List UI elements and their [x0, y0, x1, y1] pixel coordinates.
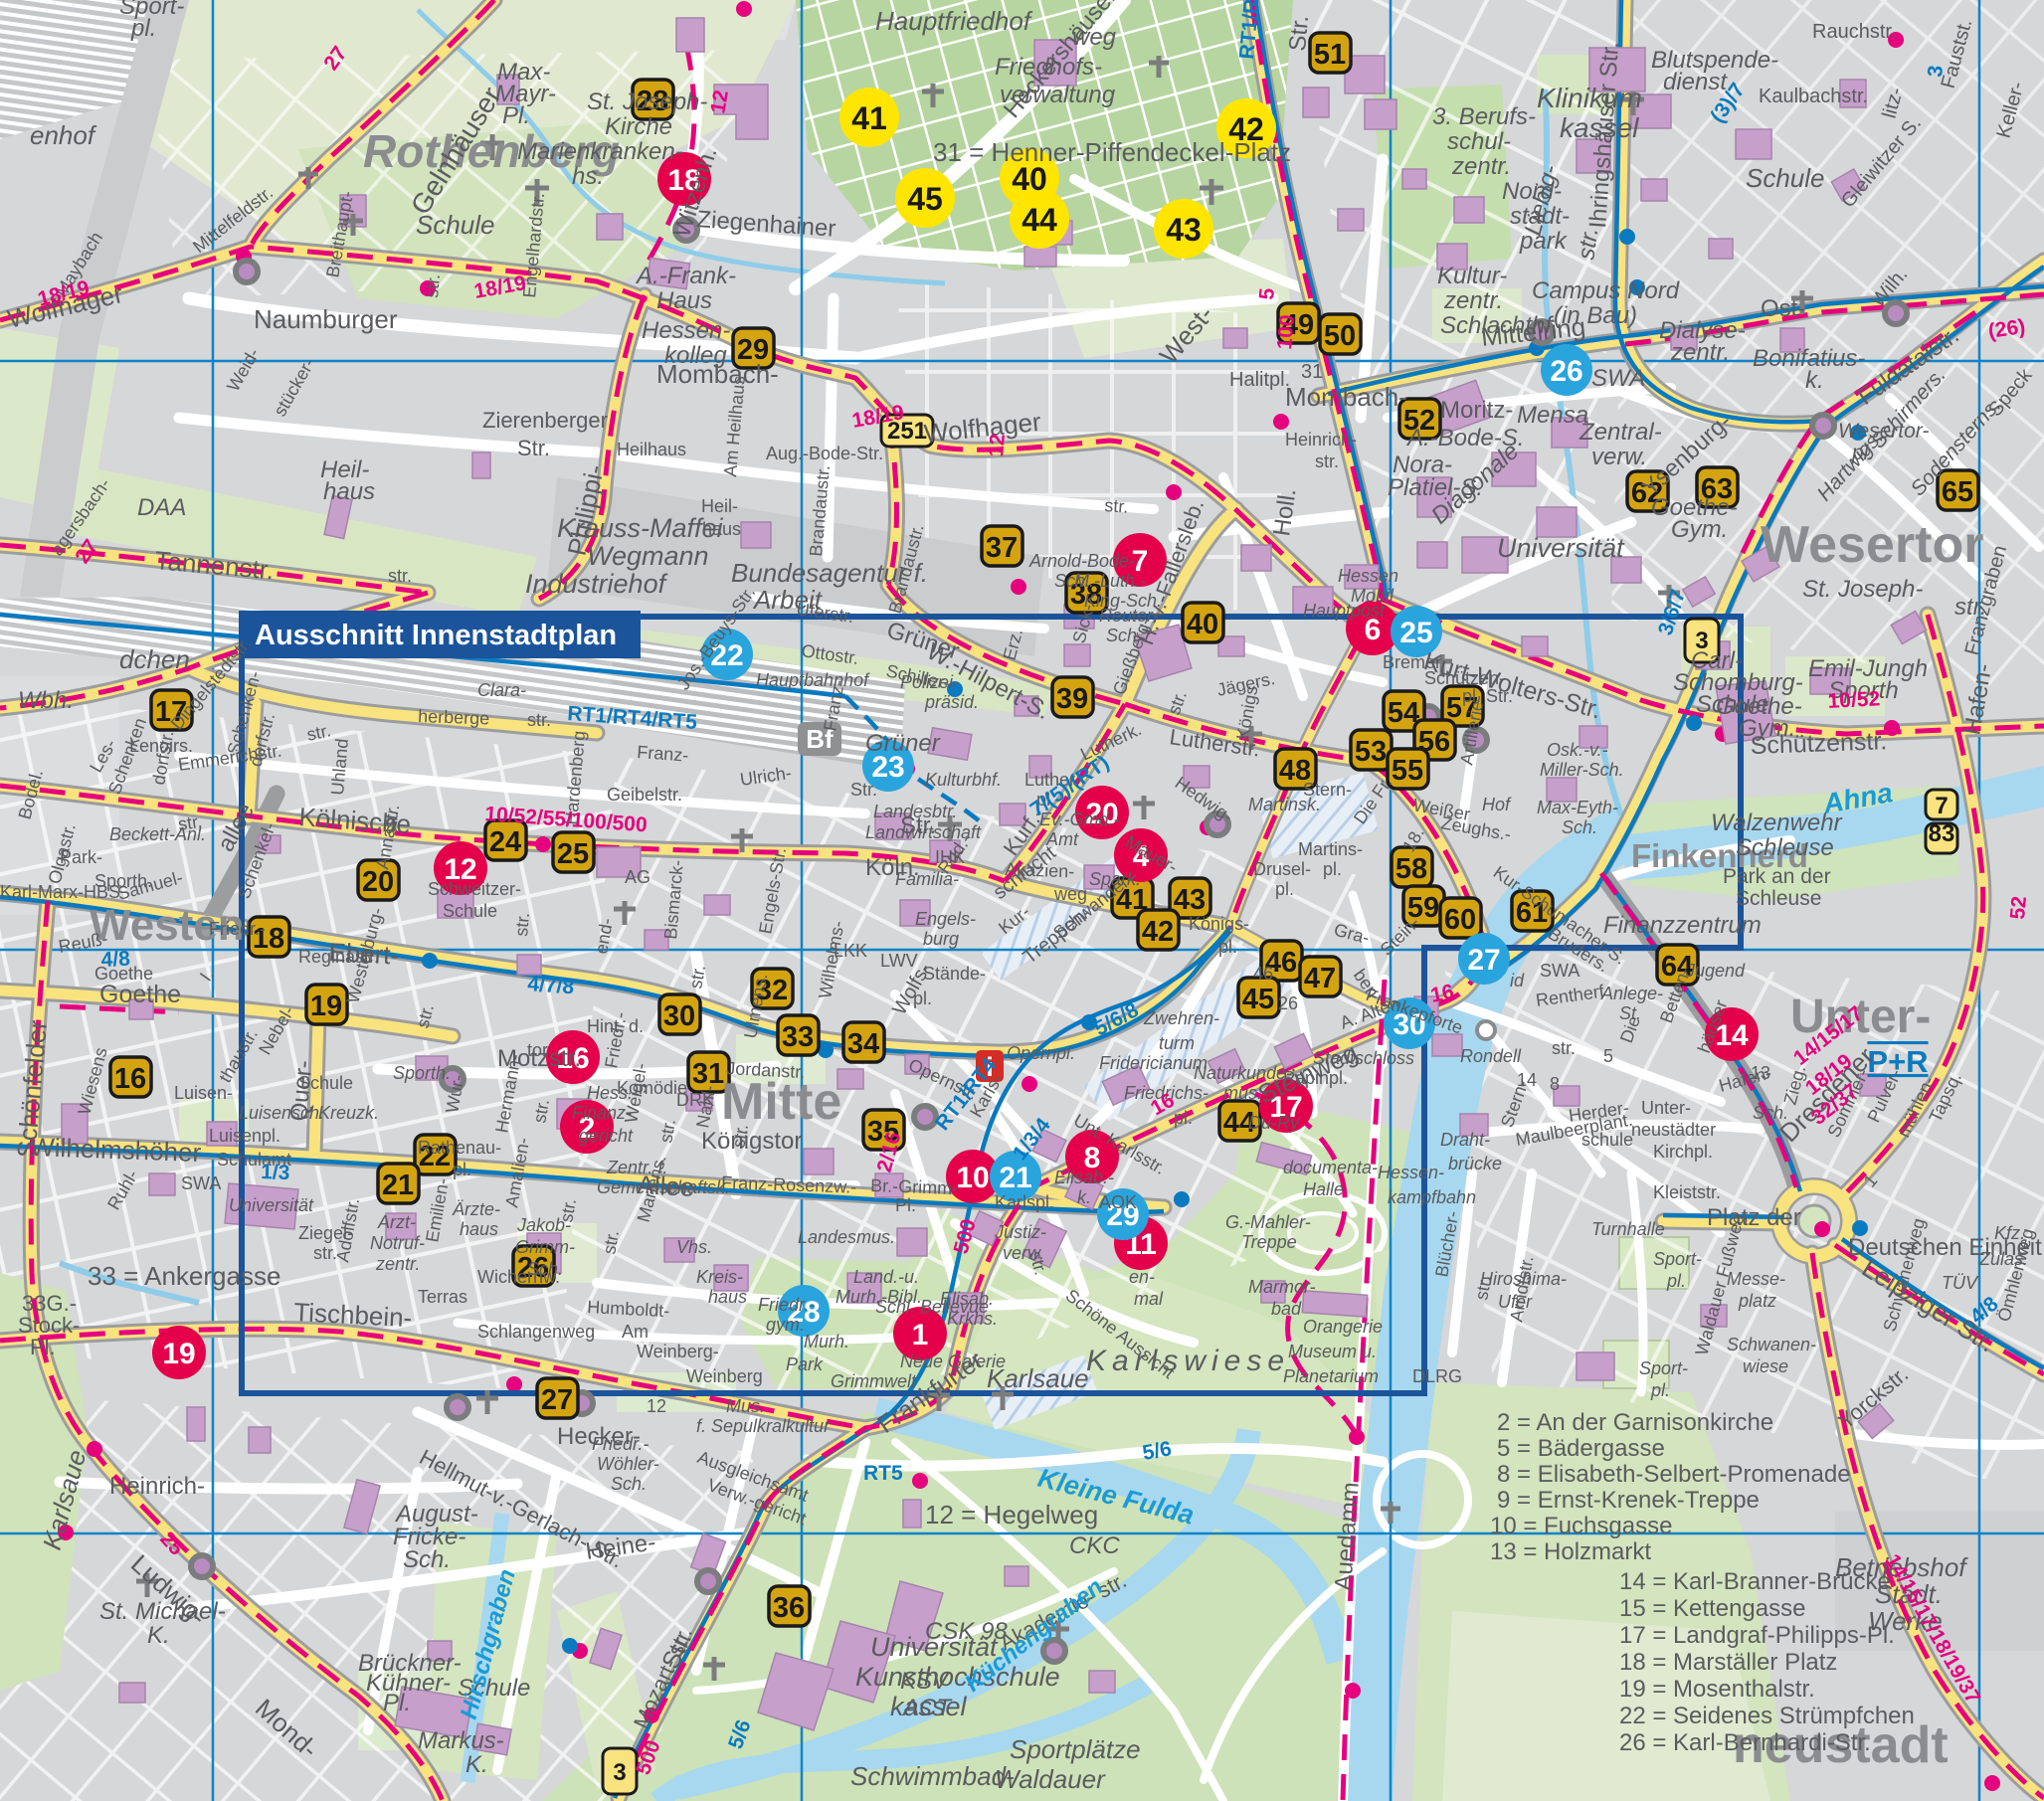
svg-text:Stände-: Stände- [923, 964, 986, 984]
svg-text:42: 42 [1142, 916, 1174, 948]
svg-text:31 = Henner-Piffendeckel-Platz: 31 = Henner-Piffendeckel-Platz [933, 137, 1291, 167]
svg-text:16: 16 [1428, 981, 1456, 1007]
svg-text:Max-Eyth-: Max-Eyth- [1537, 798, 1618, 817]
svg-text:Terras: Terras [418, 1287, 467, 1307]
svg-text:40: 40 [1187, 609, 1218, 640]
svg-text:Walzenwehr: Walzenwehr [1711, 810, 1843, 836]
svg-text:Elisab.: Elisab. [940, 1289, 994, 1309]
svg-text:Jordanstr.: Jordanstr. [726, 1058, 806, 1082]
svg-text:platz: platz [1738, 1291, 1776, 1311]
svg-text:Messe-: Messe- [1727, 1269, 1785, 1289]
svg-text:Murh.-Bibl.: Murh.-Bibl. [836, 1287, 922, 1307]
svg-text:ACT: ACT [901, 1695, 953, 1721]
svg-text:43: 43 [1166, 212, 1202, 248]
svg-text:zentr.: zentr. [1670, 339, 1730, 366]
svg-text:Karl-Marx-HBS: Karl-Marx-HBS [0, 882, 120, 902]
svg-text:Mensa: Mensa [1517, 402, 1588, 429]
svg-text:Rondell: Rondell [1460, 1046, 1522, 1066]
svg-text:Landesbtr.: Landesbtr. [873, 802, 957, 821]
svg-text:Beckett-Anl.: Beckett-Anl. [109, 824, 206, 844]
svg-text:haus: haus [708, 1287, 747, 1307]
svg-text:31: 31 [1301, 361, 1323, 383]
svg-text:k.: k. [1805, 367, 1824, 394]
svg-text:Schweitzer-: Schweitzer- [428, 879, 521, 899]
svg-text:str.: str. [313, 1243, 337, 1263]
svg-text:45: 45 [1242, 984, 1274, 1015]
svg-text:Weinberg-: Weinberg- [637, 1342, 719, 1361]
svg-text:46: 46 [1253, 964, 1273, 984]
svg-text:Schule: Schule [443, 901, 497, 921]
svg-text:Luisen-: Luisen- [174, 1083, 233, 1103]
svg-text:Landesmus.: Landesmus. [798, 1227, 895, 1247]
svg-text:Unter-: Unter- [1641, 1098, 1691, 1118]
svg-text:8 = Elisabeth-Selbert-Promenad: 8 = Elisabeth-Selbert-Promenade [1497, 1461, 1851, 1488]
svg-text:Schule: Schule [1696, 691, 1768, 718]
svg-text:King-Sch.: King-Sch. [1084, 591, 1162, 611]
svg-text:Jugend: Jugend [1685, 961, 1746, 981]
svg-text:Heilhaus: Heilhaus [617, 440, 686, 459]
svg-text:Hessen: Hessen [1338, 566, 1398, 586]
svg-text:50: 50 [1324, 320, 1356, 352]
svg-text:pl.: pl. [130, 15, 156, 42]
svg-text:Stadtschloss: Stadtschloss [1313, 1048, 1414, 1068]
svg-text:DLRG: DLRG [1412, 1366, 1462, 1386]
svg-text:Zwehren-: Zwehren- [1143, 1008, 1219, 1028]
svg-text:Schlangenweg: Schlangenweg [477, 1322, 595, 1342]
svg-text:43: 43 [1174, 884, 1206, 916]
svg-text:Turnhalle: Turnhalle [1591, 1219, 1665, 1239]
svg-text:str.: str. [422, 273, 444, 299]
svg-text:36: 36 [773, 1592, 805, 1624]
svg-text:12: 12 [647, 1396, 666, 1416]
svg-text:26: 26 [1550, 355, 1582, 388]
svg-text:pl.: pl. [1275, 879, 1294, 899]
svg-text:41: 41 [851, 100, 887, 136]
svg-text:Ausschnitt Innenstadtplan: Ausschnitt Innenstadtplan [255, 620, 617, 651]
svg-text:Gemeinschaftsk.: Gemeinschaftsk. [597, 1177, 730, 1197]
svg-text:Moritz-: Moritz- [1440, 397, 1513, 424]
svg-text:Orangerie: Orangerie [1303, 1317, 1383, 1337]
svg-text:str.: str. [1471, 1275, 1495, 1302]
svg-text:K.: K. [465, 1751, 488, 1778]
svg-text:4/8: 4/8 [100, 947, 131, 972]
svg-text:zentr.: zentr. [375, 1254, 420, 1274]
svg-text:Jakob-: Jakob- [516, 1215, 571, 1235]
svg-text:Murh.: Murh. [804, 1332, 849, 1351]
svg-text:33: 33 [782, 1021, 814, 1053]
svg-text:TÜV: TÜV [1942, 1273, 1979, 1293]
svg-text:f. Sepulkralkultur: f. Sepulkralkultur [696, 1416, 831, 1436]
svg-text:pl.: pl. [1666, 1271, 1686, 1291]
svg-text:LKK: LKK [834, 941, 867, 961]
svg-text:Zentr. f.: Zentr. f. [606, 1158, 667, 1177]
svg-text:AG: AG [625, 867, 650, 887]
svg-text:kolleg: kolleg [664, 342, 727, 369]
svg-text:58: 58 [1395, 853, 1427, 885]
svg-text:Rauchstr.: Rauchstr. [1812, 21, 1896, 43]
svg-text:Kirche: Kirche [605, 113, 672, 140]
svg-text:Justiz-: Justiz- [994, 1222, 1046, 1242]
svg-text:Rathenau-: Rathenau- [418, 1138, 501, 1158]
svg-text:Weinberg: Weinberg [686, 1366, 763, 1386]
svg-text:Hint. d.: Hint. d. [587, 1016, 644, 1036]
svg-text:Zierenberger: Zierenberger [482, 408, 608, 433]
svg-text:44: 44 [1022, 202, 1057, 238]
svg-text:45: 45 [907, 181, 943, 217]
svg-text:RT5: RT5 [863, 1462, 903, 1485]
svg-text:str.: str. [599, 1229, 623, 1256]
svg-text:Lenoirs.: Lenoirs. [129, 736, 193, 756]
svg-text:Schleuse: Schleuse [1736, 887, 1821, 910]
svg-text:Schule: Schule [298, 1073, 353, 1093]
svg-text:Tischbein-: Tischbein- [293, 1297, 413, 1333]
svg-text:Universität: Universität [229, 1195, 314, 1215]
svg-text:KSV: KSV [900, 1668, 950, 1695]
svg-text:14 = Karl-Branner-Brücke: 14 = Karl-Branner-Brücke [1619, 1568, 1891, 1595]
svg-text:kassel: kassel [1560, 112, 1639, 143]
svg-text:bad: bad [1271, 1299, 1302, 1319]
svg-text:LWV: LWV [880, 951, 918, 971]
svg-text:Wöhler-: Wöhler- [597, 1454, 659, 1474]
svg-text:Ziegel-: Ziegel- [298, 1223, 353, 1243]
svg-text:Akazien-: Akazien- [1005, 859, 1075, 881]
svg-text:Wesertor: Wesertor [1761, 516, 1983, 574]
svg-text:Fridericianum: Fridericianum [1099, 1053, 1208, 1073]
svg-text:Schwimmbad-: Schwimmbad- [850, 1761, 1015, 1791]
svg-text:Arzt-: Arzt- [377, 1212, 416, 1232]
svg-text:1: 1 [912, 1319, 929, 1351]
svg-text:mus.-: mus.- [1223, 1083, 1268, 1103]
svg-text:pl.: pl. [913, 989, 932, 1008]
svg-text:Grimmwelt: Grimmwelt [831, 1371, 917, 1391]
svg-text:Sch.: Sch. [1106, 626, 1142, 645]
svg-text:54: 54 [1388, 697, 1419, 729]
svg-text:Friedr.-: Friedr.- [209, 919, 266, 939]
svg-text:haus: haus [460, 1219, 498, 1239]
svg-text:zentr.: zentr. [1443, 287, 1503, 314]
svg-text:Kleiststr.: Kleiststr. [1653, 1182, 1721, 1202]
svg-text:Karlsaue: Karlsaue [987, 1363, 1089, 1393]
svg-text:str.: str. [1552, 1038, 1576, 1058]
svg-text:Finanzzentrum: Finanzzentrum [1603, 912, 1762, 939]
svg-text:Notruf-: Notruf- [370, 1233, 425, 1253]
svg-text:str.: str. [728, 1123, 752, 1150]
svg-text:Papinpl.: Papinpl. [1283, 1068, 1348, 1088]
svg-text:1/3: 1/3 [261, 1161, 290, 1184]
svg-text:Kirchpl.: Kirchpl. [1653, 1142, 1713, 1162]
svg-text:k.: k. [1077, 1187, 1091, 1207]
svg-text:Am: Am [622, 1322, 649, 1342]
svg-text:brücke: brücke [1448, 1154, 1502, 1173]
svg-text:Karlswiese: Karlswiese [1086, 1345, 1290, 1377]
svg-text:19 = Mosenthalstr.: 19 = Mosenthalstr. [1619, 1676, 1815, 1703]
svg-text:3: 3 [613, 1759, 626, 1786]
svg-text:16: 16 [114, 1063, 146, 1095]
svg-text:Kunsthochschule: Kunsthochschule [855, 1662, 1060, 1692]
svg-text:haus: haus [323, 478, 375, 505]
svg-text:wiese: wiese [1743, 1356, 1788, 1376]
svg-text:Anlege-: Anlege- [1600, 984, 1663, 1003]
svg-text:Luisensch.: Luisensch. [239, 1103, 324, 1123]
svg-text:12: 12 [985, 433, 1010, 457]
svg-text:Treppe: Treppe [1241, 1232, 1297, 1252]
svg-text:21: 21 [999, 1162, 1031, 1194]
svg-text:Clara-: Clara- [477, 680, 526, 700]
svg-text:verw.: verw. [1591, 444, 1647, 470]
svg-text:zentr.: zentr. [1451, 153, 1511, 180]
svg-text:Kreuzk.: Kreuzk. [318, 1103, 379, 1123]
svg-text:5: 5 [1603, 1046, 1613, 1066]
svg-text:documenta-: documenta- [1283, 1158, 1378, 1177]
svg-text:str.: str. [529, 1098, 553, 1125]
svg-text:Museum u.: Museum u. [1288, 1342, 1377, 1361]
svg-text:100: 100 [1273, 314, 1299, 351]
svg-text:51: 51 [1314, 39, 1346, 71]
svg-text:Sport-: Sport- [1653, 1249, 1702, 1269]
svg-text:turm: turm [1159, 1033, 1195, 1053]
svg-text:Arbeit: Arbeit [752, 585, 824, 615]
svg-text:Pl.: Pl. [502, 102, 530, 129]
svg-text:CKC: CKC [1069, 1532, 1120, 1559]
svg-text:4/7/8: 4/7/8 [527, 973, 576, 998]
svg-text:Wegmann: Wegmann [587, 541, 709, 571]
svg-text:gericht: gericht [579, 1126, 634, 1146]
svg-text:27: 27 [1467, 944, 1500, 977]
svg-text:Campus Nord: Campus Nord [1532, 277, 1680, 304]
svg-text:83: 83 [1929, 820, 1955, 847]
svg-text:25: 25 [1399, 617, 1432, 649]
svg-text:Ärzte-: Ärzte- [452, 1199, 500, 1219]
svg-text:Königstor: Königstor [701, 1128, 802, 1155]
svg-text:Arnold-Bode-: Arnold-Bode- [1028, 551, 1135, 571]
svg-text:(in Bau): (in Bau) [1554, 302, 1637, 329]
svg-text:65: 65 [1942, 476, 1973, 508]
svg-text:Heinrich-: Heinrich- [1285, 430, 1357, 450]
svg-text:Elisab.-: Elisab.- [1054, 1168, 1114, 1187]
svg-text:Mombach-: Mombach- [1285, 382, 1407, 412]
svg-text:53: 53 [1355, 736, 1387, 768]
svg-text:A.-Frank-: A.-Frank- [635, 263, 736, 289]
svg-text:Goethe: Goethe [99, 981, 181, 1008]
svg-text:pl.: pl. [1323, 859, 1342, 879]
svg-text:Geibelstr.: Geibelstr. [607, 785, 682, 805]
svg-text:7: 7 [1935, 793, 1948, 819]
svg-text:tor: tor [527, 1040, 548, 1060]
svg-text:Heinrich-: Heinrich- [109, 1473, 205, 1500]
svg-text:DRK: DRK [676, 1090, 714, 1110]
svg-text:56: 56 [1418, 726, 1450, 758]
svg-text:47: 47 [1304, 963, 1336, 994]
svg-text:60: 60 [1444, 904, 1476, 936]
svg-text:Hof: Hof [1482, 795, 1512, 814]
svg-text:schul-: schul- [1447, 128, 1511, 155]
svg-text:Franz-: Franz- [637, 742, 689, 766]
svg-text:17 = Landgraf-Philipps-Pl.: 17 = Landgraf-Philipps-Pl. [1619, 1622, 1895, 1649]
svg-text:Kreis-: Kreis- [696, 1267, 743, 1287]
svg-text:Königs-: Königs- [1189, 914, 1249, 934]
svg-text:Gym.: Gym. [1671, 516, 1728, 543]
svg-text:Pl.: Pl. [895, 1195, 916, 1215]
svg-text:Kultur-: Kultur- [1437, 263, 1507, 289]
svg-text:pl.: pl. [1218, 937, 1237, 957]
svg-text:SWA: SWA [1591, 365, 1645, 392]
svg-text:Schlachthf.: Schlachthf. [1440, 312, 1559, 339]
svg-text:26: 26 [1278, 993, 1298, 1013]
svg-text:Zentral-: Zentral- [1579, 419, 1662, 446]
svg-text:18 = Marställer Platz: 18 = Marställer Platz [1619, 1649, 1837, 1676]
svg-text:Opernpl.: Opernpl. [1007, 1043, 1075, 1063]
svg-text:Reginastr.: Reginastr. [298, 947, 379, 967]
svg-text:dchen: dchen [119, 644, 190, 674]
svg-text:Engels-: Engels- [915, 909, 976, 929]
svg-text:Waldauer: Waldauer [995, 1764, 1106, 1794]
svg-text:22 = Seidenes Strümpfchen: 22 = Seidenes Strümpfchen [1619, 1703, 1915, 1729]
svg-text:26 = Karl-Bernhardi-Str.: 26 = Karl-Bernhardi-Str. [1619, 1729, 1871, 1756]
svg-text:pl.: pl. [1174, 1108, 1193, 1128]
svg-text:19: 19 [162, 1338, 195, 1370]
svg-text:33 = Ankergasse: 33 = Ankergasse [88, 1261, 280, 1291]
svg-text:Park an der: Park an der [1723, 865, 1831, 888]
svg-text:str.: str. [685, 964, 709, 991]
svg-text:37: 37 [986, 532, 1018, 564]
svg-text:Aug.-Bode-Str.: Aug.-Bode-Str. [766, 444, 883, 463]
svg-text:Schleuse: Schleuse [1736, 834, 1834, 861]
svg-text:Draht-: Draht- [1440, 1130, 1490, 1150]
svg-text:5: 5 [1255, 286, 1279, 300]
svg-text:str.: str. [388, 566, 412, 586]
svg-text:id: id [1510, 971, 1525, 991]
svg-text:Amt: Amt [1045, 829, 1079, 849]
svg-text:Sport-: Sport- [1639, 1358, 1688, 1378]
svg-text:12: 12 [706, 89, 733, 115]
svg-text:Friedr.-: Friedr.- [592, 1434, 649, 1454]
svg-text:Marmor-: Marmor- [1248, 1277, 1316, 1297]
svg-text:Sportplätze: Sportplätze [1010, 1734, 1141, 1764]
svg-text:burg: burg [923, 929, 959, 949]
svg-text:Naturkunde-: Naturkunde- [1194, 1063, 1292, 1083]
svg-text:5 = Bädergasse: 5 = Bädergasse [1497, 1435, 1665, 1462]
svg-text:Osk.-v.-: Osk.-v.- [1547, 740, 1608, 760]
svg-text:Str.: Str. [517, 436, 550, 460]
svg-text:verwaltung: verwaltung [1000, 82, 1116, 108]
svg-text:str.: str. [1315, 451, 1339, 471]
svg-text:AOK: AOK [1099, 1192, 1137, 1212]
svg-text:Kulturbhf.: Kulturbhf. [925, 770, 1002, 790]
svg-text:Krkhs.: Krkhs. [947, 1309, 998, 1329]
svg-text:Miller-Sch.: Miller-Sch. [1540, 760, 1624, 780]
svg-text:Universität: Universität [1497, 533, 1625, 563]
svg-text:8: 8 [1550, 1074, 1560, 1094]
svg-text:3. Berufs-: 3. Berufs- [1432, 103, 1536, 130]
svg-text:Industriehof: Industriehof [525, 569, 668, 599]
svg-text:Mobil: Mobil [1351, 586, 1394, 606]
svg-text:Krauss-Maffei: Krauss-Maffei [557, 513, 724, 543]
svg-text:Schule: Schule [416, 210, 495, 240]
svg-text:weg: weg [1072, 24, 1117, 51]
svg-text:34: 34 [847, 1028, 879, 1060]
svg-text:Karlspl.: Karlspl. [995, 1192, 1054, 1212]
svg-text:19: 19 [310, 991, 342, 1022]
svg-text:Platz der: Platz der [1707, 1204, 1801, 1231]
svg-text:Naumburger: Naumburger [254, 304, 398, 334]
svg-text:gym.: gym. [766, 1315, 805, 1335]
svg-text:Luisenpl.: Luisenpl. [209, 1126, 280, 1146]
svg-text:str.: str. [511, 912, 533, 938]
svg-text:Planetarium: Planetarium [1283, 1366, 1379, 1386]
svg-text:dienst: dienst [1663, 69, 1728, 95]
svg-text:Str.: Str. [850, 780, 877, 800]
svg-text:Friedhofs-: Friedhofs- [995, 54, 1102, 81]
svg-text:herberge: herberge [418, 706, 490, 729]
svg-text:Halitpl.: Halitpl. [1229, 369, 1290, 391]
svg-text:Kaulbachstr.: Kaulbachstr. [1759, 86, 1868, 107]
svg-text:Hessen-: Hessen- [642, 317, 730, 344]
svg-text:DAA: DAA [137, 494, 186, 521]
svg-text:Str.: Str. [1284, 14, 1314, 52]
svg-text:Schwanen-: Schwanen- [1727, 1335, 1816, 1354]
svg-text:52: 52 [2006, 895, 2031, 920]
svg-text:12 = Hegelweg: 12 = Hegelweg [925, 1500, 1098, 1530]
svg-text:Mus.: Mus. [726, 1396, 765, 1416]
svg-text:21: 21 [382, 1170, 414, 1201]
svg-text:Sch.: Sch. [1753, 1103, 1788, 1123]
svg-text:CSK 98: CSK 98 [925, 1618, 1008, 1645]
svg-text:25: 25 [557, 838, 589, 870]
svg-text:2 = An der Garnisonkirche: 2 = An der Garnisonkirche [1497, 1409, 1773, 1436]
svg-text:Polizei-: Polizei- [900, 672, 959, 692]
svg-text:39: 39 [1056, 683, 1088, 715]
svg-text:Vhs.: Vhs. [676, 1237, 712, 1257]
svg-text:30: 30 [663, 1000, 695, 1032]
svg-text:Sch.: Sch. [527, 1259, 563, 1279]
svg-text:Park: Park [786, 1354, 824, 1374]
svg-text:neustädter: neustädter [1631, 1120, 1716, 1140]
svg-text:str.: str. [1104, 495, 1129, 517]
svg-text:Grüner: Grüner [865, 730, 941, 757]
svg-text:Hauptfriedhof: Hauptfriedhof [875, 6, 1033, 36]
svg-text:Sporth.: Sporth. [393, 1063, 451, 1083]
svg-text:Halle: Halle [1303, 1179, 1344, 1199]
svg-text:St. Joseph-: St. Joseph- [587, 89, 707, 115]
svg-text:Bundesagentur f.: Bundesagentur f. [731, 558, 928, 588]
svg-text:Hessen-: Hessen- [1378, 1163, 1444, 1182]
svg-text:St. Joseph-: St. Joseph- [1802, 576, 1923, 603]
svg-text:15 = Kettengasse: 15 = Kettengasse [1619, 1595, 1805, 1622]
svg-text:Gym.: Gym. [1739, 715, 1795, 742]
svg-text:St. Michael-: St. Michael- [99, 1598, 226, 1625]
svg-text:Wilhelmshöher: Wilhelmshöher [30, 1132, 202, 1168]
svg-text:Friedr.-: Friedr.- [758, 1295, 815, 1315]
svg-text:en-: en- [1129, 1267, 1155, 1287]
svg-text:Pl.: Pl. [30, 1335, 56, 1359]
svg-text:Martins-: Martins- [1298, 839, 1363, 859]
svg-text:pl.: pl. [453, 1160, 471, 1179]
svg-text:str.: str. [655, 1118, 679, 1145]
svg-text:SWA: SWA [181, 1173, 221, 1193]
svg-text:Sch.: Sch. [611, 1474, 647, 1494]
svg-text:10/52: 10/52 [1827, 687, 1881, 713]
svg-text:Klinikum: Klinikum [1537, 83, 1642, 113]
svg-text:Haus: Haus [656, 287, 712, 314]
svg-text:55: 55 [1392, 755, 1423, 787]
svg-text:verw.: verw. [1003, 1243, 1044, 1263]
svg-text:Markus-: Markus- [418, 1727, 504, 1754]
svg-text:9 = Ernst-Krenek-Treppe: 9 = Ernst-Krenek-Treppe [1497, 1487, 1760, 1514]
svg-text:kampfbahn: kampfbahn [1388, 1187, 1476, 1207]
svg-text:Schule: Schule [1746, 163, 1825, 193]
svg-text:Stern-: Stern- [1303, 780, 1352, 800]
svg-text:24: 24 [489, 826, 521, 858]
